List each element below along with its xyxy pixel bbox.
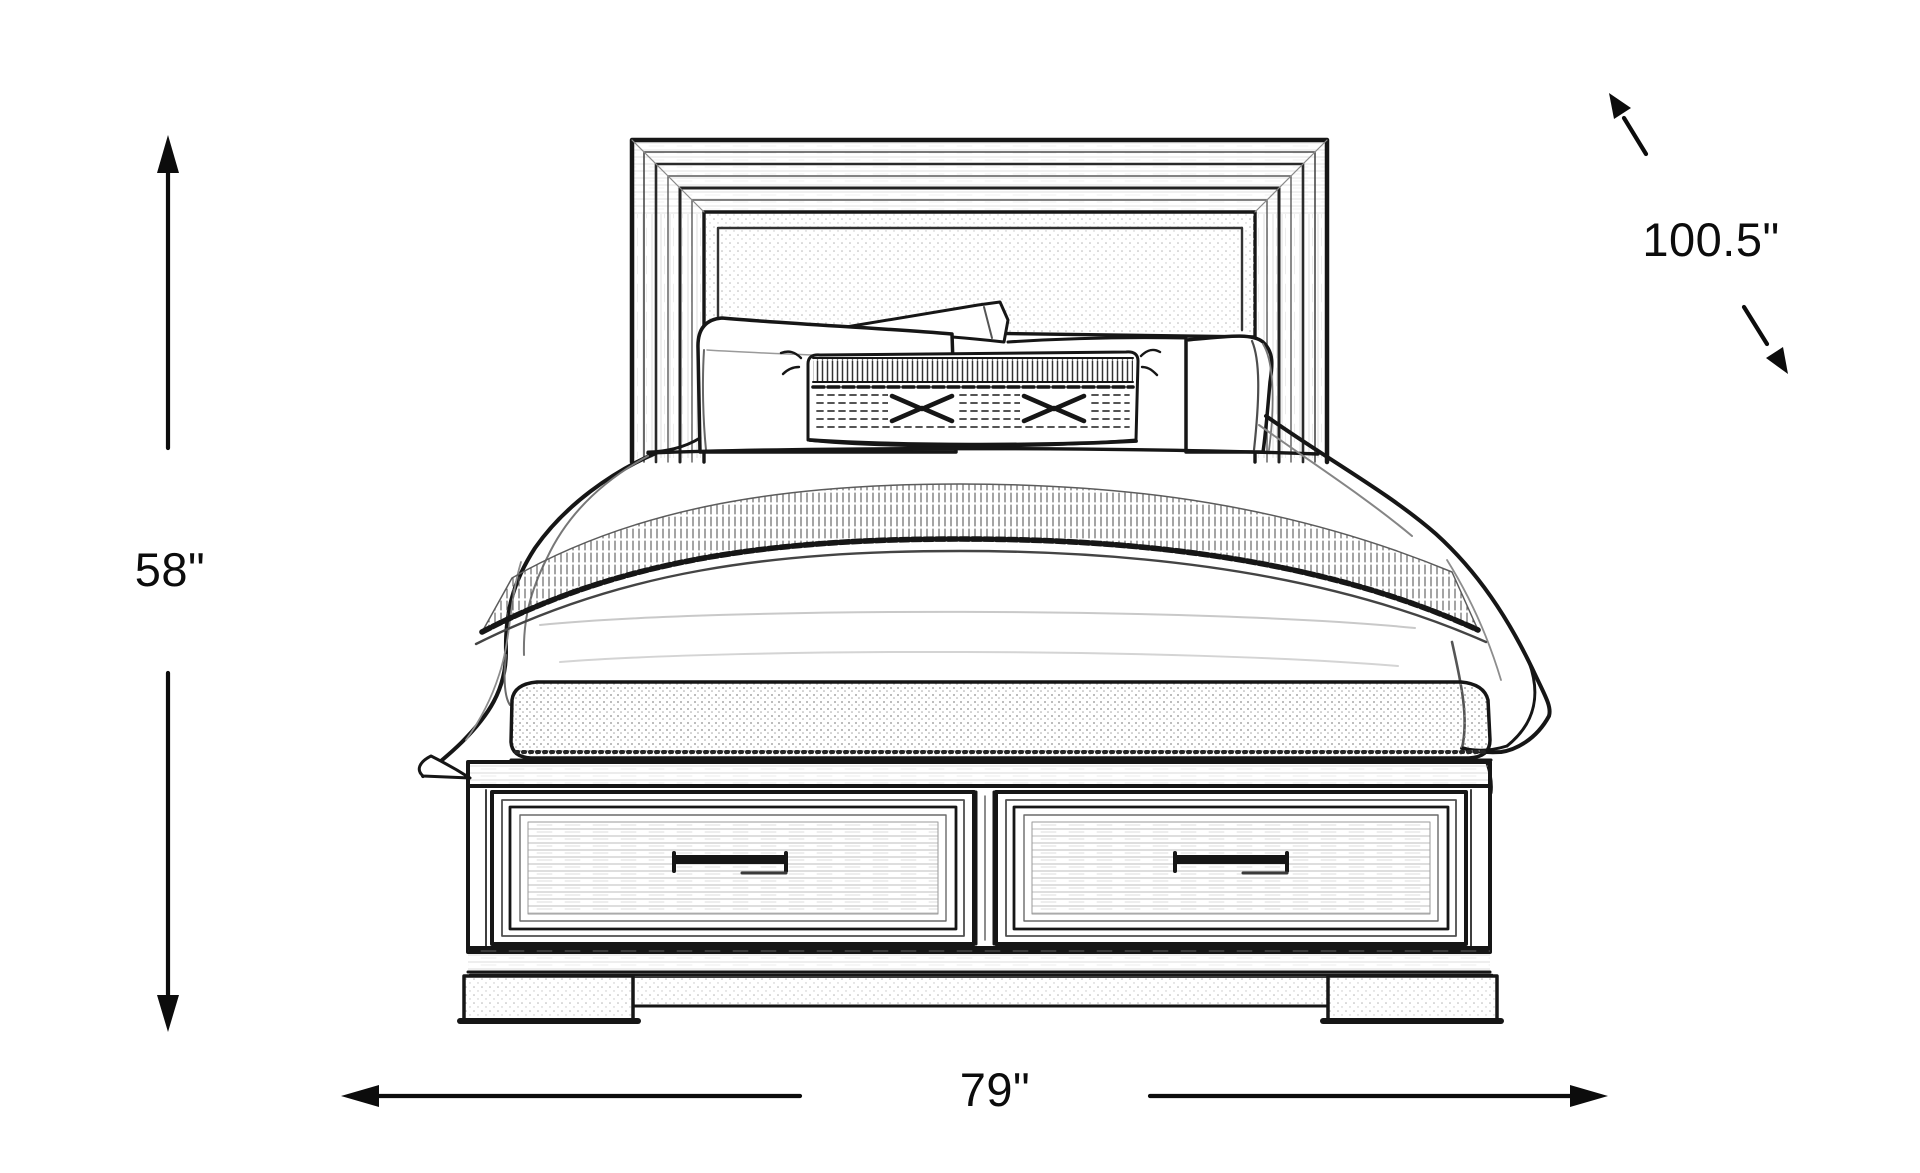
- drawer-right: [996, 792, 1466, 944]
- down-right-arrow-icon: [1744, 307, 1788, 374]
- up-arrow-icon: [157, 135, 179, 448]
- left-arrow-icon: [341, 1085, 800, 1107]
- height-dimension-label: 58": [135, 543, 205, 596]
- bed-illustration: [419, 140, 1549, 1021]
- sheet-fold-band: [476, 484, 1486, 644]
- depth-dimension: 100.5": [1609, 93, 1788, 374]
- base-plinth: [460, 975, 1501, 1021]
- right-arrow-icon: [1150, 1085, 1608, 1107]
- depth-dimension-label: 100.5": [1642, 213, 1779, 266]
- height-dimension: 58": [135, 135, 205, 1032]
- bed-dimension-diagram: 58" 79" 100.5": [0, 0, 1920, 1173]
- foot-right: [1323, 976, 1501, 1021]
- foot-left: [460, 976, 638, 1021]
- accent-pillow: [781, 350, 1160, 446]
- up-left-arrow-icon: [1609, 93, 1646, 154]
- width-dimension: 79": [341, 1063, 1608, 1116]
- drawer-left: [492, 792, 974, 944]
- dimension-diagram-page: 58" 79" 100.5": [0, 0, 1920, 1173]
- pillow-right: [1186, 336, 1273, 452]
- width-dimension-label: 79": [960, 1063, 1030, 1116]
- storage-footboard: [468, 762, 1490, 972]
- back-pillow-right: [1008, 338, 1186, 342]
- down-arrow-icon: [157, 673, 179, 1032]
